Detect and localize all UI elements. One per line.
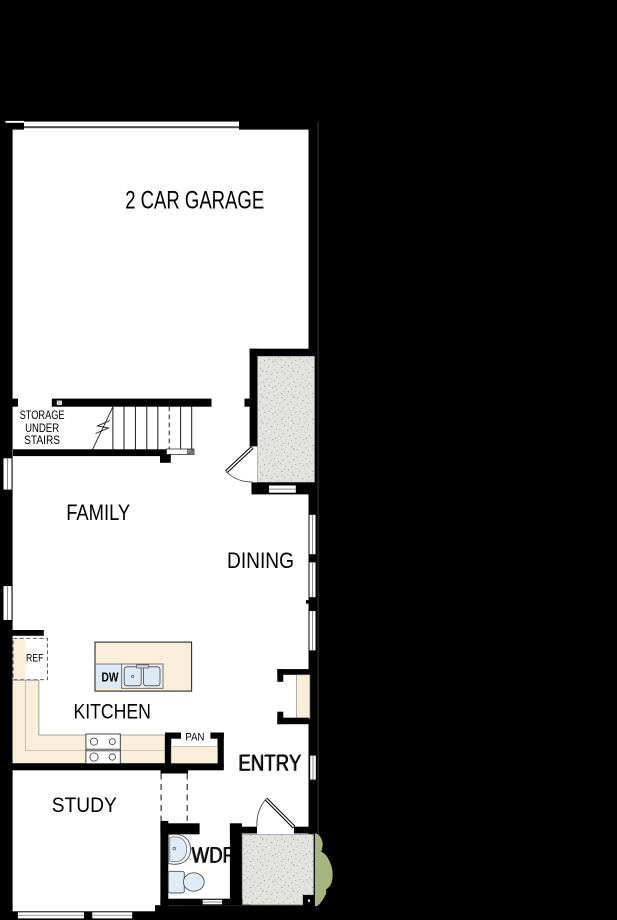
svg-text:ENTRY: ENTRY	[239, 750, 302, 776]
svg-text:STUDY: STUDY	[52, 794, 117, 817]
svg-text:DW: DW	[102, 669, 120, 684]
svg-text:STORAGE: STORAGE	[20, 410, 65, 422]
svg-text:STAIRS: STAIRS	[24, 435, 60, 447]
svg-text:2 CAR GARAGE: 2 CAR GARAGE	[125, 187, 264, 215]
svg-text:UNDER: UNDER	[25, 423, 59, 435]
svg-text:PAN: PAN	[185, 731, 204, 743]
svg-text:REF: REF	[26, 653, 44, 665]
svg-text:FAMILY: FAMILY	[66, 500, 130, 525]
svg-text:KITCHEN: KITCHEN	[73, 700, 151, 724]
svg-text:DINING: DINING	[227, 548, 294, 573]
